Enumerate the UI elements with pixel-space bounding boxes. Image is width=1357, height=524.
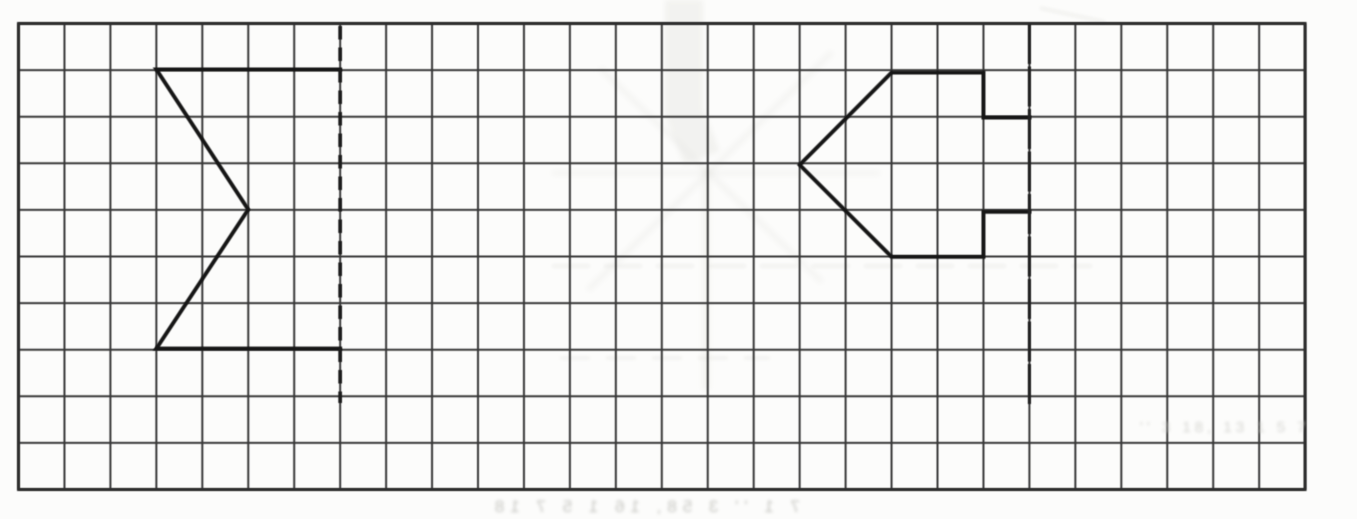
svg-text:7 1 '' 3 58, 16 1 5 7 18: 7 1 '' 3 58, 16 1 5 7 18 [489, 497, 800, 516]
svg-text:'' 3 18, 13 1 5 7: '' 3 18, 13 1 5 7 [1140, 419, 1310, 436]
